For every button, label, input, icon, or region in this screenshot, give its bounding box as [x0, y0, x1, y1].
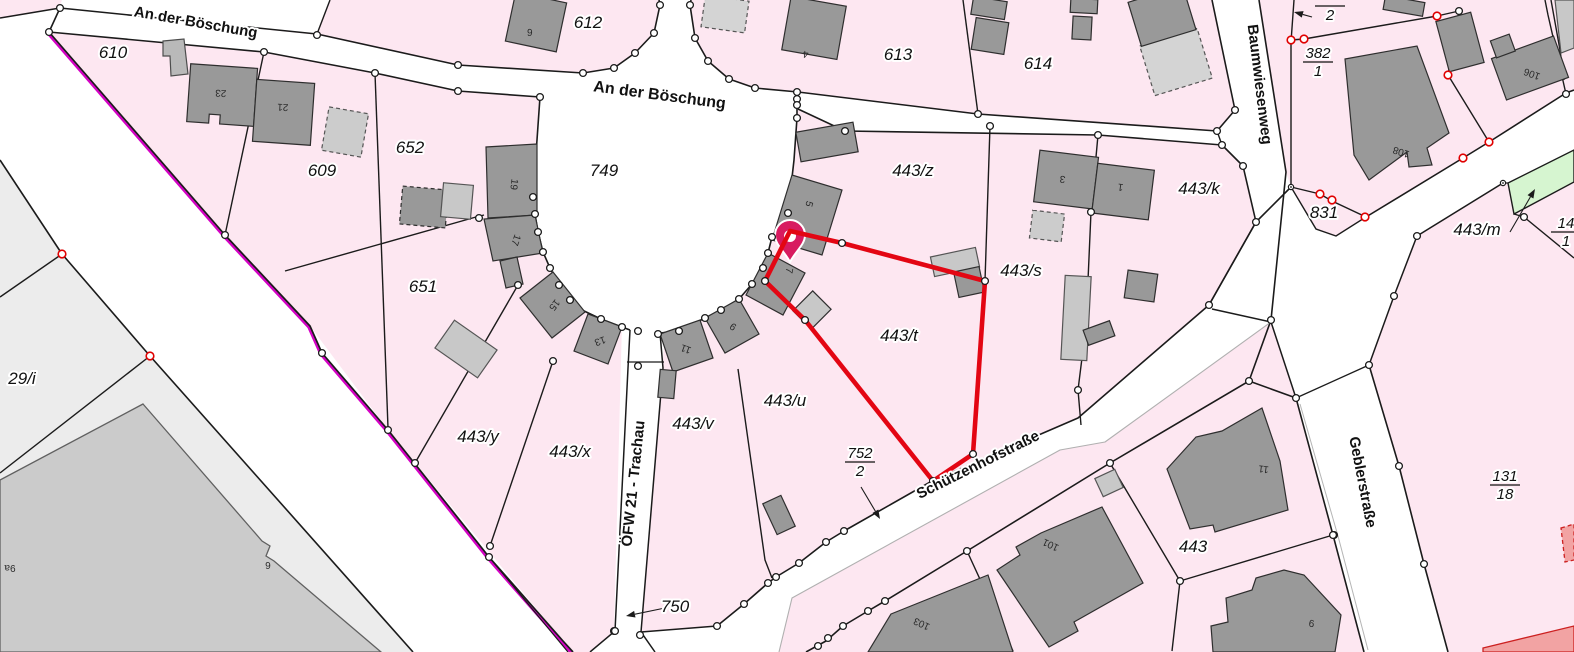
svg-text:9a: 9a [4, 562, 16, 573]
svg-text:2: 2 [1325, 7, 1335, 24]
svg-text:443/s: 443/s [1000, 261, 1042, 280]
svg-text:2: 2 [855, 463, 865, 480]
svg-text:443/k: 443/k [1178, 179, 1221, 198]
svg-text:19: 19 [507, 178, 519, 191]
svg-text:1: 1 [1314, 63, 1322, 80]
svg-text:752: 752 [847, 445, 873, 462]
svg-text:443/m: 443/m [1453, 220, 1500, 239]
svg-text:750: 750 [661, 597, 690, 616]
svg-text:443/u: 443/u [764, 391, 807, 410]
svg-text:443/y: 443/y [457, 427, 500, 446]
svg-text:610: 610 [99, 43, 128, 62]
svg-text:29/i: 29/i [7, 369, 37, 388]
svg-text:21: 21 [277, 101, 289, 113]
svg-text:609: 609 [308, 161, 337, 180]
svg-text:11: 11 [1257, 462, 1269, 474]
svg-text:612: 612 [574, 13, 603, 32]
svg-text:443/v: 443/v [672, 414, 715, 433]
svg-text:18: 18 [1497, 486, 1514, 503]
svg-text:614: 614 [1024, 54, 1052, 73]
svg-text:443: 443 [1179, 537, 1208, 556]
svg-text:443/t: 443/t [880, 326, 919, 345]
svg-text:651: 651 [409, 277, 437, 296]
svg-text:749: 749 [590, 161, 619, 180]
svg-text:443/x: 443/x [549, 442, 591, 461]
svg-text:613: 613 [884, 45, 913, 64]
svg-text:23: 23 [215, 87, 227, 99]
svg-text:6: 6 [265, 559, 271, 570]
svg-text:14: 14 [1558, 215, 1574, 232]
svg-text:1: 1 [1562, 233, 1570, 250]
svg-text:443/z: 443/z [892, 161, 934, 180]
svg-text:382: 382 [1305, 45, 1331, 62]
svg-text:131: 131 [1492, 468, 1517, 485]
svg-text:652: 652 [396, 138, 425, 157]
svg-text:6: 6 [526, 26, 533, 37]
svg-text:831: 831 [1310, 203, 1338, 222]
